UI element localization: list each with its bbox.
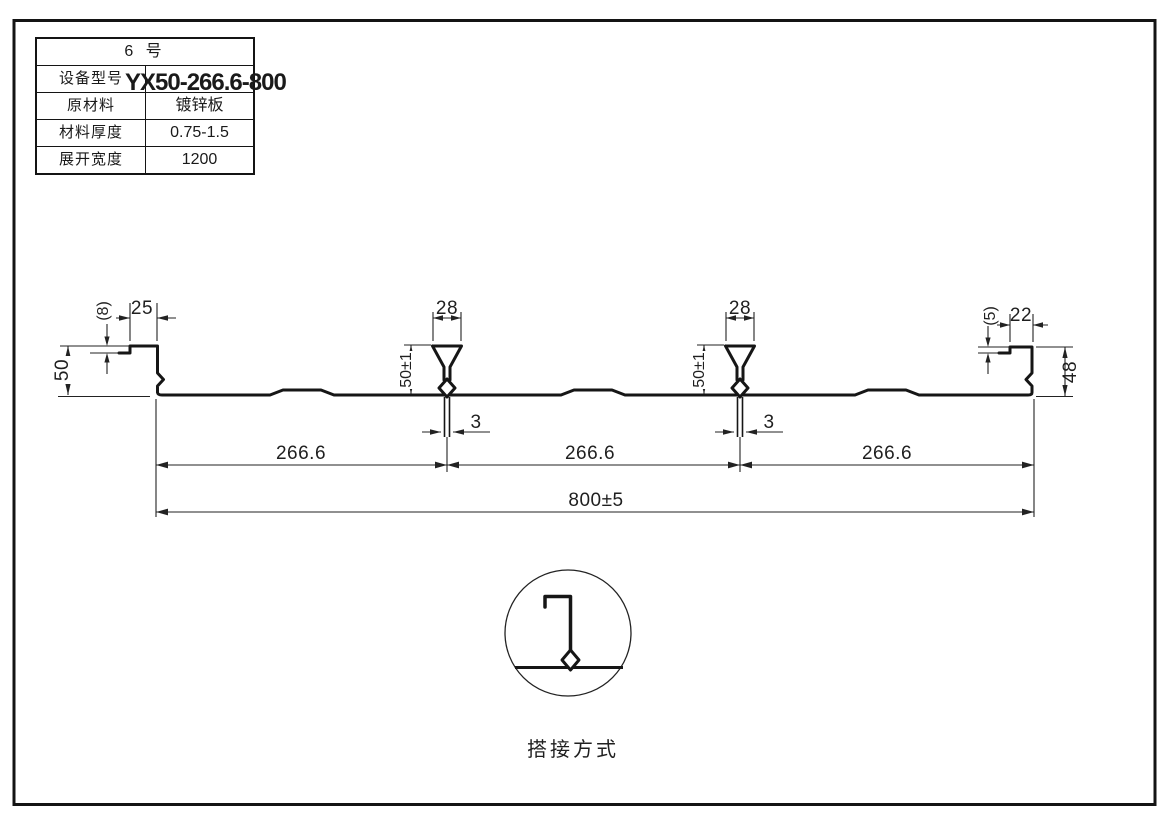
table-row-coil-width: 展开宽度 1200 bbox=[37, 146, 253, 173]
thickness-value: 0.75-1.5 bbox=[146, 120, 253, 146]
drawing-page: 25 (8) 50 28 50±1 3 28 50±1 3 (5) 22 48 … bbox=[0, 0, 1169, 827]
panel-profile-outline bbox=[119, 346, 1032, 397]
lap-detail: 搭接方式 bbox=[505, 570, 631, 761]
dim-span2: 266.6 bbox=[565, 443, 615, 464]
dimension-texts: 25 (8) 50 28 50±1 3 28 50±1 3 (5) 22 48 … bbox=[52, 298, 1081, 511]
detail-caption: 搭接方式 bbox=[527, 738, 619, 761]
rib-seam-tails bbox=[445, 397, 743, 437]
table-title: 6 号 bbox=[124, 39, 165, 65]
dim-span1: 266.6 bbox=[276, 443, 326, 464]
dim-rib1-height: 50±1 bbox=[398, 352, 415, 388]
table-row-thickness: 材料厚度 0.75-1.5 bbox=[37, 119, 253, 146]
model-number: YX50-266.6-800 bbox=[125, 69, 286, 97]
dim-rib2-height: 50±1 bbox=[691, 352, 708, 388]
dimension-lines bbox=[58, 303, 1073, 517]
coil-width-value: 1200 bbox=[146, 147, 253, 173]
dim-right-height: 48 bbox=[1060, 361, 1081, 383]
profile-sheet-line bbox=[119, 346, 1032, 395]
dim-right-step: (5) bbox=[982, 306, 999, 326]
dim-total-width: 800±5 bbox=[568, 490, 623, 511]
thickness-label: 材料厚度 bbox=[37, 120, 146, 146]
dim-rib2-gap: 3 bbox=[763, 412, 774, 433]
table-title-row: 6 号 bbox=[37, 39, 253, 65]
dim-rib1-top: 28 bbox=[436, 298, 458, 319]
dimension-arrows bbox=[65, 315, 1067, 515]
rib2-funnel bbox=[726, 346, 755, 380]
detail-circle bbox=[505, 570, 631, 696]
spec-table: 6 号 设备型号 原材料 镀锌板 材料厚度 0.75-1.5 展开宽度 1200… bbox=[35, 37, 255, 175]
rib1-funnel bbox=[433, 346, 462, 380]
detail-hook-sheet bbox=[545, 597, 571, 651]
dim-right-lip: 22 bbox=[1010, 305, 1032, 326]
coil-width-label: 展开宽度 bbox=[37, 147, 146, 173]
dim-rib1-gap: 3 bbox=[470, 412, 481, 433]
dim-left-step: (8) bbox=[95, 301, 112, 321]
dim-rib2-top: 28 bbox=[729, 298, 751, 319]
dim-left-height: 50 bbox=[52, 359, 73, 381]
dim-left-lip: 25 bbox=[131, 298, 153, 319]
dim-span3: 266.6 bbox=[862, 443, 912, 464]
